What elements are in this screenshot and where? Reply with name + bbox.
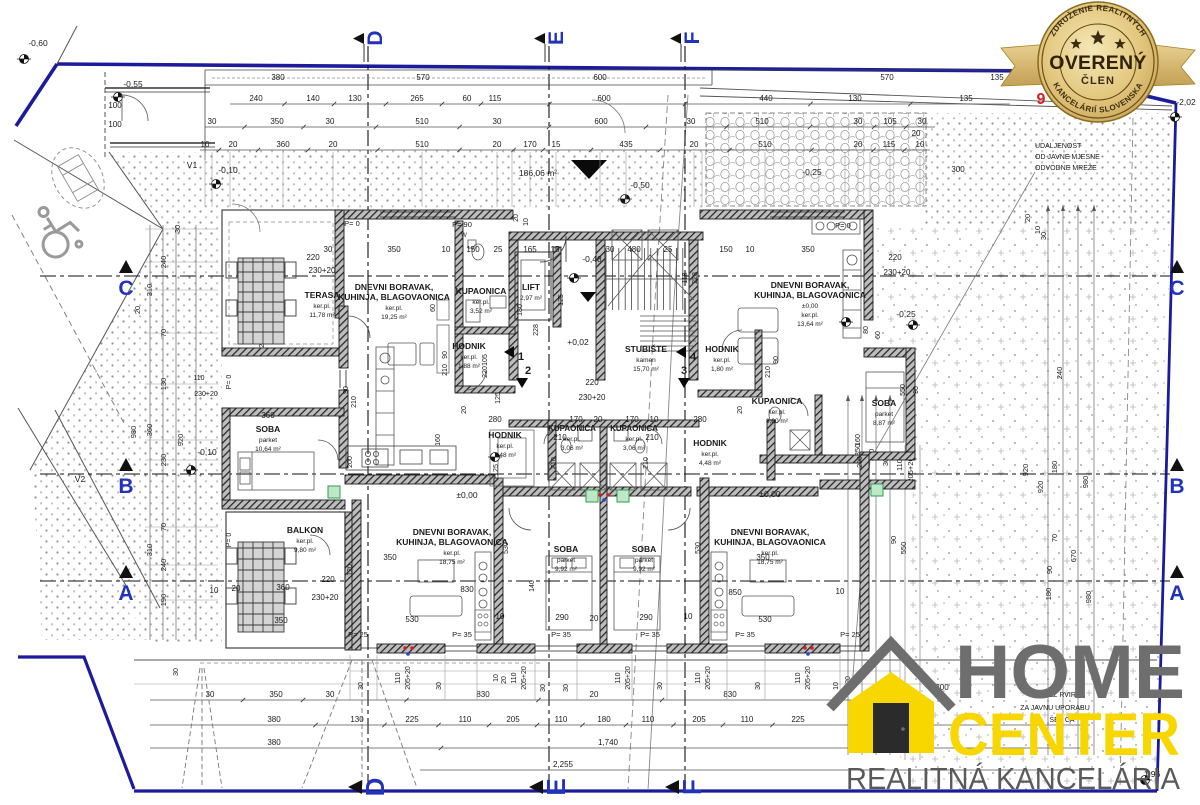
svg-text:110: 110 [695,672,702,683]
svg-text:CENTER: CENTER [948,701,1180,768]
svg-text:P= 90: P= 90 [452,220,472,229]
svg-text:SOBA: SOBA [872,398,897,408]
svg-text:20: 20 [232,584,241,593]
svg-text:70: 70 [1050,534,1059,542]
svg-text:510: 510 [758,140,772,149]
svg-text:600: 600 [597,94,611,103]
svg-text:ker.pl.: ker.pl. [296,538,314,545]
svg-text:kamen: kamen [636,357,656,364]
svg-text:D: D [360,778,390,797]
svg-text:KUPAONICA: KUPAONICA [752,396,803,406]
svg-text:160: 160 [855,434,862,446]
svg-text:170: 170 [523,140,537,149]
svg-text:B: B [1169,475,1184,498]
svg-text:10: 10 [210,586,219,595]
svg-text:W: W [461,233,467,239]
svg-text:310: 310 [145,544,154,557]
svg-text:TERASA: TERASA [305,290,340,300]
svg-text:F: F [677,779,707,795]
svg-text:150: 150 [719,245,733,254]
svg-text:830: 830 [460,585,474,594]
svg-text:ker.pl.: ker.pl. [768,409,786,416]
svg-text:A: A [1169,582,1184,605]
svg-text:360: 360 [261,411,275,420]
svg-text:210: 210 [643,457,650,469]
svg-text:20: 20 [513,214,520,222]
svg-text:9,92 m²: 9,92 m² [633,566,656,573]
svg-text:435: 435 [619,140,633,149]
svg-text:HODNIK: HODNIK [705,344,739,354]
svg-text:228: 228 [692,272,699,284]
svg-text:V2: V2 [75,474,86,484]
svg-text:3,52 m²: 3,52 m² [470,308,493,315]
svg-text:4: 4 [690,351,697,363]
svg-text:30: 30 [1039,232,1048,240]
svg-text:F: F [681,31,704,44]
svg-text:280: 280 [488,415,502,424]
svg-text:2,97 m²: 2,97 m² [520,295,543,302]
svg-text:480: 480 [627,245,641,254]
svg-text:B: B [118,475,133,498]
svg-text:KUPAONICA: KUPAONICA [610,424,658,433]
svg-text:118: 118 [682,272,689,283]
svg-text:290: 290 [639,613,653,622]
svg-text:20: 20 [1023,214,1032,222]
svg-text:110: 110 [795,672,802,683]
svg-text:HODNIK: HODNIK [693,438,727,448]
svg-text:90: 90 [343,386,350,394]
svg-text:parket: parket [259,437,277,444]
svg-text:20: 20 [229,140,238,149]
svg-text:ker.pl.: ker.pl. [701,451,719,458]
svg-text:10: 10 [493,674,500,682]
svg-text:P= 25: P= 25 [840,630,860,639]
svg-text:110: 110 [459,715,472,724]
svg-text:10: 10 [650,415,659,424]
svg-text:550: 550 [900,384,907,396]
svg-text:BALKON: BALKON [287,525,323,535]
svg-text:380: 380 [267,738,281,747]
svg-text:KUHINJA, BLAGOVAONICA: KUHINJA, BLAGOVAONICA [754,290,866,300]
svg-text:-0,10: -0,10 [218,165,238,175]
svg-text:140: 140 [306,94,320,103]
svg-text:10: 10 [836,587,845,596]
svg-text:130: 130 [348,94,362,103]
svg-text:440: 440 [759,94,773,103]
svg-text:125: 125 [493,464,500,476]
svg-text:300: 300 [951,165,965,174]
svg-text:1,740: 1,740 [598,738,619,747]
svg-text:220: 220 [306,253,320,262]
svg-text:90: 90 [442,351,449,359]
svg-text:200: 200 [857,456,864,468]
svg-text:360: 360 [276,583,290,592]
svg-text:980: 980 [1084,591,1093,604]
svg-text:ker.pl.: ker.pl. [443,550,461,557]
svg-text:530: 530 [758,615,772,624]
svg-text:10: 10 [201,140,210,149]
svg-text:HODNIK: HODNIK [488,430,522,440]
svg-text:210: 210 [645,433,659,442]
svg-text:135: 135 [990,73,1004,82]
svg-text:20: 20 [493,140,502,149]
svg-text:P= 0: P= 0 [226,533,233,548]
svg-text:KUPAONICA: KUPAONICA [456,286,507,296]
svg-text:19,25 m²: 19,25 m² [381,314,407,321]
svg-text:8,87 m²: 8,87 m² [873,420,896,427]
svg-text:530: 530 [695,542,702,554]
svg-text:350: 350 [756,553,770,562]
svg-text:20: 20 [594,415,603,424]
svg-text:120: 120 [347,564,354,576]
svg-text:265: 265 [410,94,424,103]
svg-text:parket: parket [875,411,893,418]
svg-text:10: 10 [442,245,451,254]
svg-text:15: 15 [551,245,560,254]
svg-text:DNEVNI BORAVAK,: DNEVNI BORAVAK, [413,527,492,537]
svg-text:20: 20 [329,140,338,149]
svg-text:E: E [545,31,568,45]
svg-text:230+20: 230+20 [312,593,339,602]
svg-text:KUHINJA, BLAGOVAONICA: KUHINJA, BLAGOVAONICA [396,537,508,547]
svg-text:C: C [118,277,133,300]
svg-text:205: 205 [506,715,520,724]
svg-text:110: 110 [395,672,402,683]
svg-text:OVERENÝ: OVERENÝ [1049,50,1146,74]
svg-text:KUHINJA, BLAGOVAONICA: KUHINJA, BLAGOVAONICA [338,292,450,302]
svg-text:30: 30 [173,668,180,676]
svg-text:V1: V1 [187,160,198,170]
svg-text:-0,10: -0,10 [197,447,217,457]
svg-text:A: A [118,582,133,605]
svg-text:ker.pl.: ker.pl. [625,436,643,443]
svg-text:350: 350 [387,245,401,254]
svg-text:350: 350 [274,616,288,625]
svg-text:ker.pl.: ker.pl. [385,305,403,312]
svg-text:110: 110 [895,459,904,471]
svg-text:P= 35: P= 35 [640,630,660,639]
svg-text:90: 90 [913,386,920,394]
svg-text:10: 10 [833,682,840,690]
svg-text:DNEVNI BORAVAK,: DNEVNI BORAVAK, [355,282,434,292]
svg-text:25: 25 [664,245,673,254]
svg-text:90: 90 [889,536,898,544]
svg-text:205+20: 205+20 [805,666,812,690]
svg-text:30: 30 [206,690,215,699]
svg-text:380: 380 [267,715,281,724]
svg-text:13,64 m²: 13,64 m² [797,321,823,328]
svg-text:240: 240 [1055,367,1064,380]
svg-text:+0,02: +0,02 [567,337,589,347]
svg-text:125: 125 [558,294,565,306]
svg-text:P= 0: P= 0 [344,219,360,228]
svg-text:3,06 m²: 3,06 m² [623,445,646,452]
svg-text:30: 30 [606,245,615,254]
svg-text:20: 20 [737,406,744,414]
svg-text:180: 180 [1044,588,1053,601]
svg-text:30: 30 [687,117,696,126]
svg-text:210: 210 [553,433,567,442]
svg-text:30: 30 [358,682,365,690]
svg-text:30: 30 [540,684,547,692]
svg-text:530: 530 [405,615,419,624]
svg-text:100: 100 [108,101,122,110]
svg-text:-0,25: -0,25 [896,309,916,319]
svg-text:180: 180 [517,304,524,316]
svg-text:180: 180 [597,715,611,724]
svg-text:220: 220 [482,366,489,378]
svg-text:225: 225 [405,715,419,724]
svg-text:KUPAONICA: KUPAONICA [548,424,596,433]
svg-text:ČLEN: ČLEN [1081,74,1115,87]
svg-text:980: 980 [1081,476,1090,489]
svg-text:ker.pl.: ker.pl. [713,357,731,364]
svg-text:160: 160 [435,434,442,446]
svg-text:600: 600 [594,117,608,126]
svg-text:510: 510 [415,117,429,126]
svg-text:1: 1 [518,351,524,363]
svg-text:105: 105 [482,354,489,366]
svg-text:20: 20 [590,614,599,623]
svg-text:2,255: 2,255 [553,760,574,769]
svg-text:-2,02: -2,02 [1176,97,1196,107]
svg-text:C: C [1169,277,1184,300]
svg-text:90: 90 [1045,566,1054,574]
svg-text:830: 830 [476,690,490,699]
svg-text:±0,00: ±0,00 [759,489,780,499]
svg-text:20: 20 [912,129,921,138]
svg-text:30: 30 [326,690,335,699]
svg-text:ker.pl.: ker.pl. [496,443,514,450]
svg-text:REALITNÁ KANCELÁRIA: REALITNÁ KANCELÁRIA [846,761,1180,796]
svg-text:30: 30 [755,682,762,690]
svg-text:225: 225 [791,715,805,724]
svg-text:9,80 m²: 9,80 m² [294,547,317,554]
svg-text:920: 920 [1021,464,1030,477]
svg-text:60: 60 [430,304,437,312]
svg-text:OD JAVNE MJESNE: OD JAVNE MJESNE [1035,154,1100,161]
svg-text:180: 180 [1050,461,1059,474]
svg-text:110: 110 [615,672,622,683]
svg-text:SOBA: SOBA [554,544,579,554]
svg-text:30: 30 [657,682,664,690]
svg-text:10: 10 [523,218,530,226]
svg-text:170: 170 [625,415,639,424]
svg-text:200: 200 [347,456,354,468]
svg-text:3: 3 [681,365,687,377]
svg-text:165: 165 [523,245,537,254]
svg-text:210: 210 [442,364,449,376]
svg-text:90: 90 [773,356,780,364]
svg-text:125: 125 [495,392,502,404]
svg-text:230+20: 230+20 [579,393,606,402]
svg-text:4,48 m²: 4,48 m² [699,460,722,467]
svg-text:60: 60 [875,331,882,339]
svg-text:830: 830 [723,690,737,699]
svg-text:360: 360 [276,140,290,149]
svg-text:110: 110 [642,715,655,724]
svg-text:210: 210 [551,457,558,469]
svg-text:±0,00: ±0,00 [456,490,477,500]
svg-text:115: 115 [489,94,502,103]
svg-text:HODNIK: HODNIK [452,341,486,351]
svg-text:30: 30 [208,117,217,126]
svg-text:228: 228 [533,324,540,336]
svg-text:80: 80 [863,326,870,334]
svg-text:-0,50: -0,50 [630,180,650,190]
svg-text:150: 150 [466,245,480,254]
svg-text:20: 20 [854,140,863,149]
svg-text:570: 570 [416,73,430,82]
svg-text:60: 60 [463,94,472,103]
svg-text:ker.pl.: ker.pl. [460,354,478,361]
svg-text:-0,48: -0,48 [582,254,602,264]
svg-text:SOBA: SOBA [632,544,657,554]
svg-text:DNEVNI BORAVAK,: DNEVNI BORAVAK, [771,280,850,290]
svg-text:550: 550 [899,542,908,555]
svg-text:135: 135 [959,94,973,103]
svg-text:110: 110 [511,672,518,683]
svg-text:9: 9 [1037,91,1046,108]
svg-text:110: 110 [555,715,568,724]
svg-text:130: 130 [848,94,862,103]
svg-text:186,06 m²: 186,06 m² [519,168,557,178]
svg-text:850: 850 [728,588,742,597]
svg-text:170: 170 [569,415,583,424]
svg-text:30: 30 [493,117,502,126]
svg-text:510: 510 [755,117,769,126]
svg-text:205+20: 205+20 [521,666,528,690]
svg-text:20: 20 [590,690,599,699]
svg-text:LIFT: LIFT [522,282,541,292]
svg-text:20: 20 [133,306,142,314]
svg-text:15: 15 [552,140,561,149]
svg-text:P= 25: P= 25 [348,630,368,639]
svg-text:530: 530 [503,542,510,554]
svg-text:980: 980 [129,426,138,439]
svg-text:±0,00: ±0,00 [802,303,819,310]
svg-text:15,70 m²: 15,70 m² [633,366,659,373]
svg-text:205+20: 205+20 [705,666,712,690]
svg-text:220: 220 [888,253,902,262]
svg-text:ker.pl.: ker.pl. [313,303,331,310]
svg-text:SOBA: SOBA [256,424,281,434]
svg-text:18,75 m²: 18,75 m² [439,559,465,566]
svg-text:30: 30 [324,245,333,254]
svg-text:230+20: 230+20 [194,391,218,398]
svg-text:UDALJENOST: UDALJENOST [1035,143,1082,150]
svg-text:-0,25: -0,25 [802,167,822,177]
svg-text:ker.pl.: ker.pl. [472,299,490,306]
svg-text:140: 140 [529,580,536,592]
svg-text:350: 350 [801,245,815,254]
svg-text:3,90 m²: 3,90 m² [766,418,789,425]
svg-text:E: E [541,778,571,795]
svg-text:290: 290 [555,613,569,622]
svg-text:KUHINJA, BLAGOVAONICA: KUHINJA, BLAGOVAONICA [714,537,826,547]
svg-text:205+20: 205+20 [906,457,915,482]
svg-text:3,06 m²: 3,06 m² [561,445,584,452]
svg-text:510: 510 [415,140,429,149]
svg-text:600: 600 [593,73,607,82]
svg-text:30: 30 [436,682,443,690]
svg-text:10: 10 [684,612,693,621]
svg-text:110: 110 [193,375,204,382]
svg-text:110: 110 [741,715,754,724]
svg-text:230+20: 230+20 [884,268,911,277]
svg-text:-0,60: -0,60 [28,38,48,48]
svg-text:360: 360 [145,424,154,437]
svg-text:30: 30 [326,117,335,126]
svg-text:100: 100 [108,120,122,129]
svg-text:20: 20 [690,140,699,149]
svg-text:570: 570 [880,73,894,82]
svg-text:380: 380 [271,73,285,82]
svg-text:920: 920 [1036,481,1045,494]
svg-text:30: 30 [563,684,570,692]
svg-text:1,80 m²: 1,80 m² [711,366,734,373]
svg-text:350: 350 [383,553,397,562]
svg-text:670: 670 [1069,550,1078,563]
svg-text:205: 205 [692,715,706,724]
svg-text:DNEVNI BORAVAK,: DNEVNI BORAVAK, [731,527,810,537]
svg-text:240: 240 [249,94,263,103]
svg-text:P= 0: P= 0 [835,221,851,230]
svg-text:220: 220 [321,575,335,584]
svg-text:210: 210 [765,366,772,378]
svg-text:D: D [364,30,387,45]
svg-text:25: 25 [494,245,503,254]
svg-text:ODVODNE MREŽE: ODVODNE MREŽE [1035,163,1097,172]
svg-text:11,78 m²: 11,78 m² [309,312,335,319]
svg-text:9,92 m²: 9,92 m² [555,566,578,573]
svg-text:30: 30 [854,117,863,126]
svg-text:2: 2 [525,365,531,377]
svg-text:P= 0: P= 0 [226,375,233,390]
svg-text:STUBIŠTE: STUBIŠTE [625,343,667,354]
svg-text:10,64 m²: 10,64 m² [255,446,281,453]
svg-text:20: 20 [501,676,508,684]
svg-text:350: 350 [270,117,284,126]
svg-text:350: 350 [269,690,283,699]
svg-text:105: 105 [883,117,897,126]
svg-text:P= 35: P= 35 [551,630,571,639]
svg-text:230+20: 230+20 [309,266,336,275]
svg-text:10: 10 [496,612,505,621]
svg-text:P= 35: P= 35 [452,630,472,639]
svg-text:ker.pl.: ker.pl. [801,312,819,319]
svg-text:parket: parket [557,557,575,564]
svg-text:parket: parket [635,557,653,564]
svg-text:10: 10 [746,245,755,254]
svg-text:20: 20 [461,406,468,414]
svg-text:280: 280 [693,415,707,424]
svg-text:205+20: 205+20 [625,666,632,690]
svg-text:210: 210 [351,396,358,408]
svg-text:30: 30 [918,117,927,126]
svg-text:205+20: 205+20 [405,666,412,690]
svg-text:115: 115 [883,140,896,149]
svg-text:1,88 m²: 1,88 m² [458,363,481,370]
svg-text:10: 10 [916,140,925,149]
svg-text:P= 35: P= 35 [735,630,755,639]
